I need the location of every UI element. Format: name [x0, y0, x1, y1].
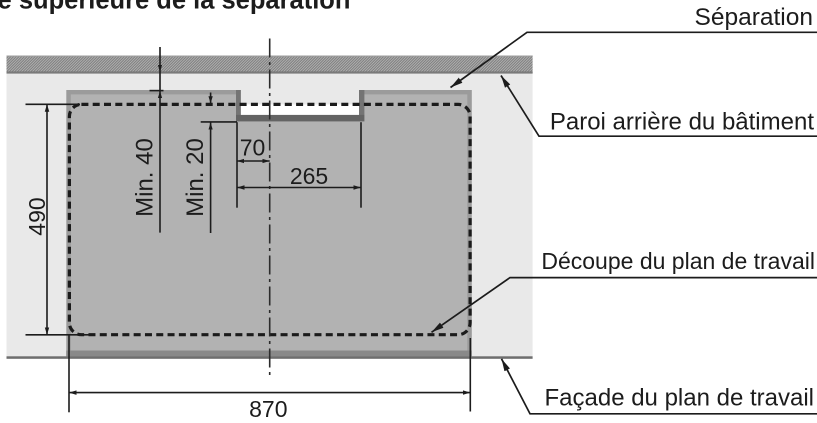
svg-text:490: 490 — [24, 197, 50, 235]
svg-text:Min. 20: Min. 20 — [182, 138, 209, 217]
svg-text:870: 870 — [249, 396, 287, 422]
svg-text:Min. 40: Min. 40 — [132, 138, 159, 217]
svg-text:70: 70 — [240, 135, 266, 161]
svg-text:Face supérieure de la séparati: Face supérieure de la séparation — [0, 0, 350, 15]
svg-text:Découpe du plan de travail: Découpe du plan de travail — [541, 248, 815, 274]
svg-text:Séparation: Séparation — [694, 4, 813, 31]
svg-text:265: 265 — [290, 163, 328, 189]
svg-text:Façade du plan de travail: Façade du plan de travail — [544, 385, 814, 412]
svg-text:Paroi arrière du bâtiment: Paroi arrière du bâtiment — [550, 109, 814, 136]
